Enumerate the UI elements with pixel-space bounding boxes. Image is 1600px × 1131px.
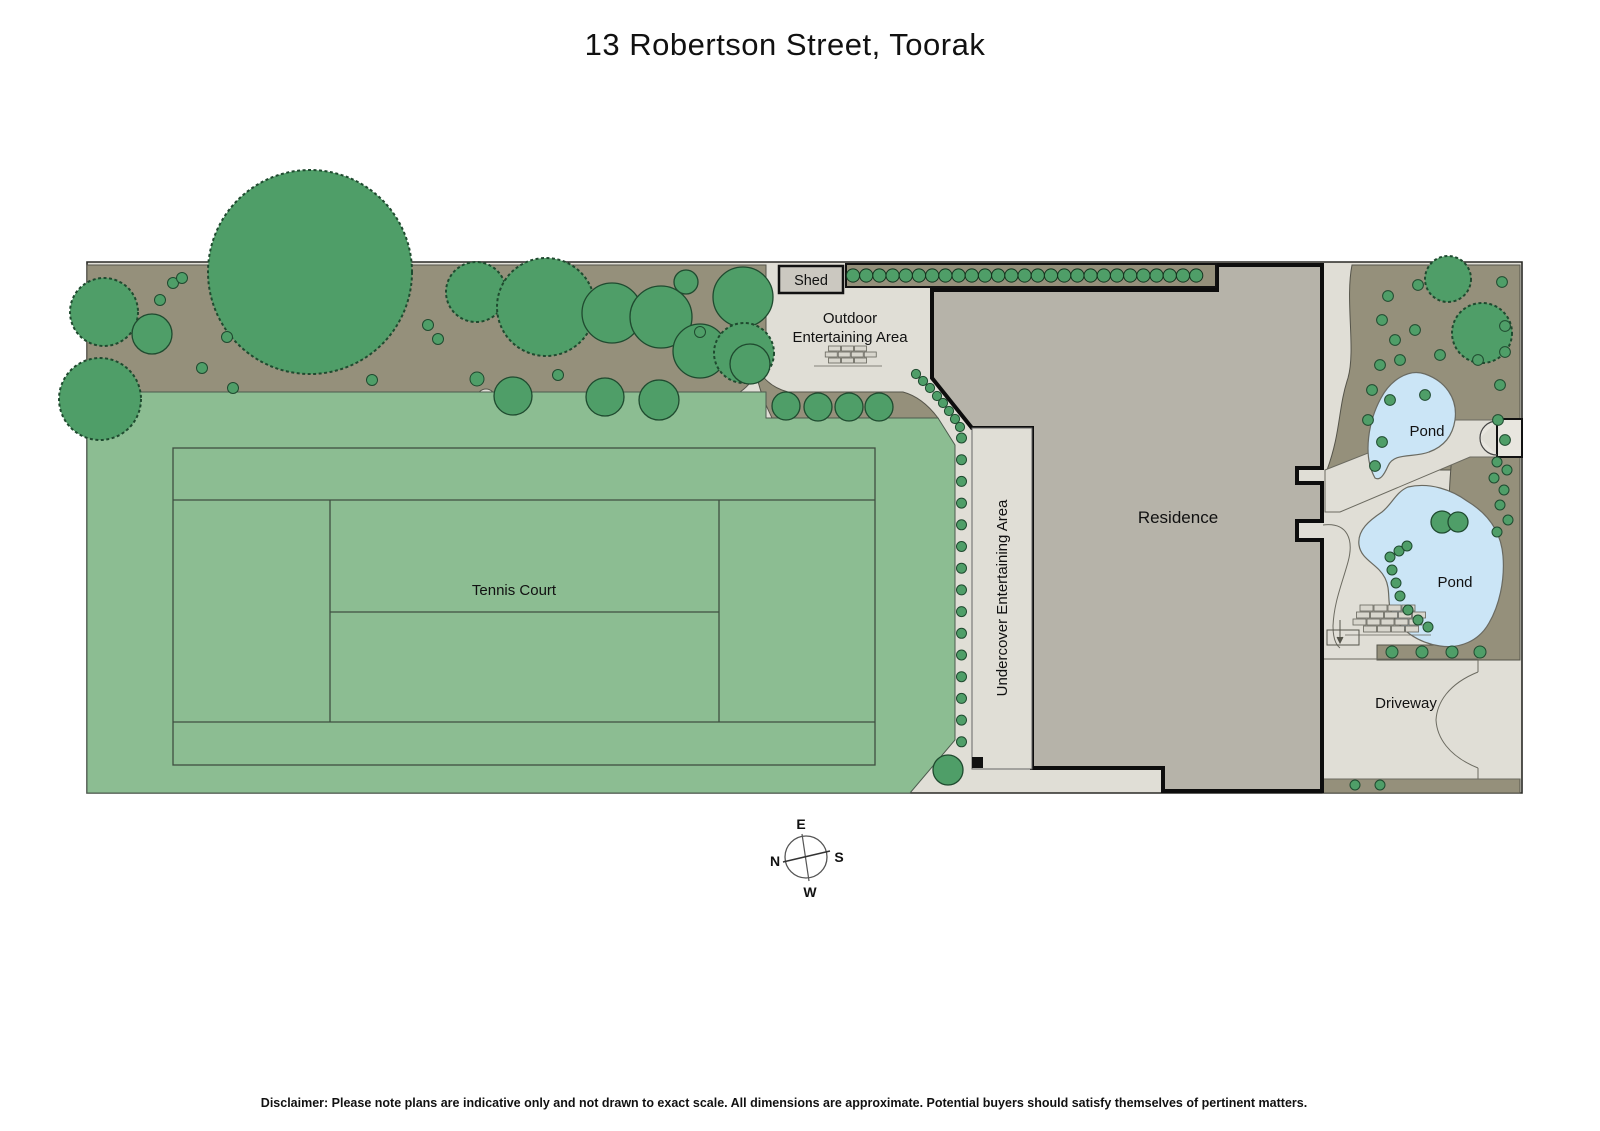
undercover-label: Undercover Entertaining Area — [994, 499, 1011, 696]
outdoor-area-label-line2: Entertaining Area — [792, 329, 908, 346]
page-title: 13 Robertson Street, Toorak — [585, 27, 986, 62]
site-plan-page: 13 Robertson Street, Toorak Tennis Court… — [0, 0, 1600, 1131]
pond-upper-label: Pond — [1409, 423, 1444, 440]
compass: E S W N — [770, 816, 844, 900]
compass-north: N — [770, 853, 780, 869]
site-plan-drawing: 13 Robertson Street, Toorak Tennis Court… — [0, 0, 1600, 1131]
corner-marker — [972, 757, 983, 768]
disclaimer-text: Disclaimer: Please note plans are indica… — [261, 1096, 1307, 1110]
pond-lower-label: Pond — [1437, 574, 1472, 591]
driveway-label: Driveway — [1375, 695, 1437, 712]
residence-label: Residence — [1138, 508, 1218, 527]
shed-label: Shed — [794, 273, 828, 289]
compass-east: E — [796, 816, 805, 832]
compass-west: W — [803, 884, 817, 900]
compass-south: S — [834, 849, 843, 865]
tennis-court-label: Tennis Court — [472, 582, 557, 599]
outdoor-area-label-line1: Outdoor — [823, 310, 877, 327]
